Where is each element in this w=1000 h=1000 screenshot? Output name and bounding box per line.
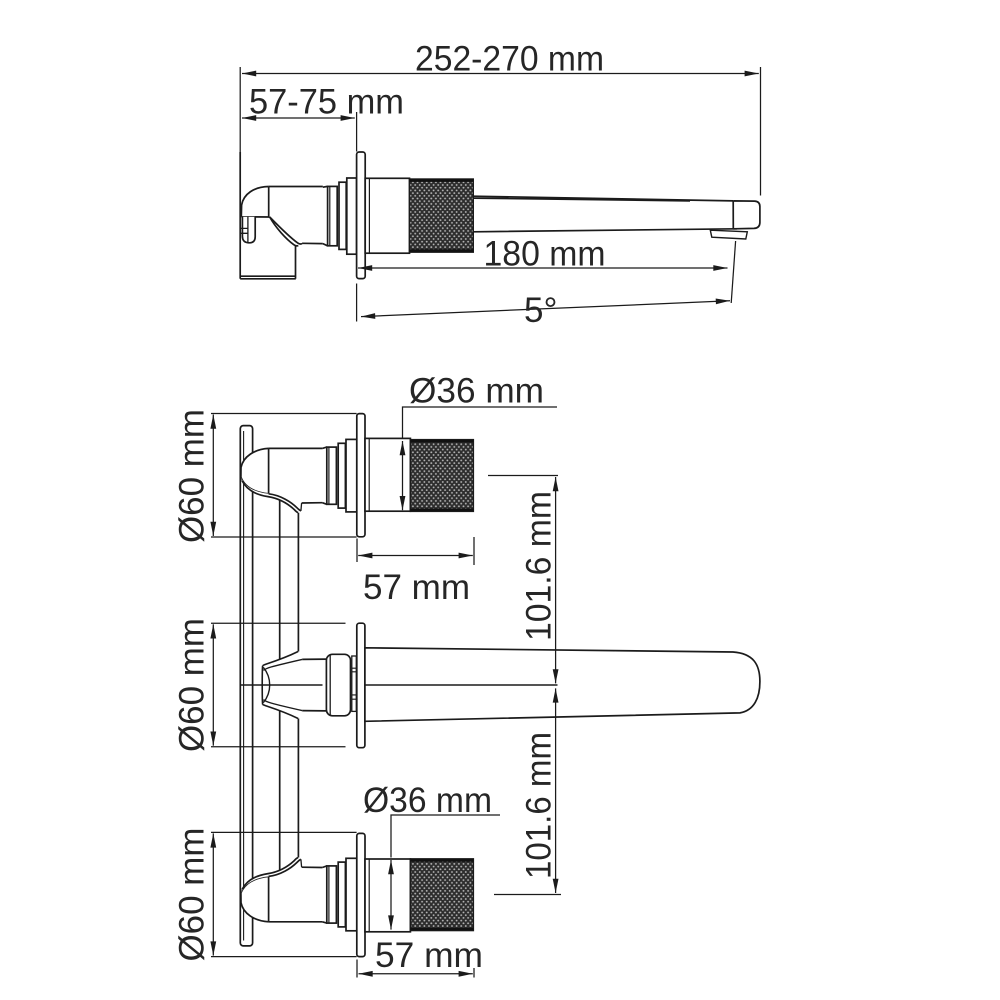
svg-text:252-270 mm: 252-270 mm xyxy=(415,40,604,79)
svg-text:57-75 mm: 57-75 mm xyxy=(249,83,404,122)
svg-text:Ø60 mm: Ø60 mm xyxy=(173,618,212,752)
svg-text:Ø60 mm: Ø60 mm xyxy=(173,828,212,962)
svg-text:5°: 5° xyxy=(524,291,557,330)
svg-text:101.6 mm: 101.6 mm xyxy=(520,491,559,641)
svg-text:Ø36 mm: Ø36 mm xyxy=(363,781,492,820)
svg-text:57 mm: 57 mm xyxy=(363,568,470,607)
svg-text:101.6 mm: 101.6 mm xyxy=(520,732,559,879)
svg-text:Ø36 mm: Ø36 mm xyxy=(409,372,544,411)
svg-text:Ø60 mm: Ø60 mm xyxy=(173,409,212,543)
svg-text:180 mm: 180 mm xyxy=(484,235,606,274)
svg-text:57 mm: 57 mm xyxy=(375,936,483,975)
